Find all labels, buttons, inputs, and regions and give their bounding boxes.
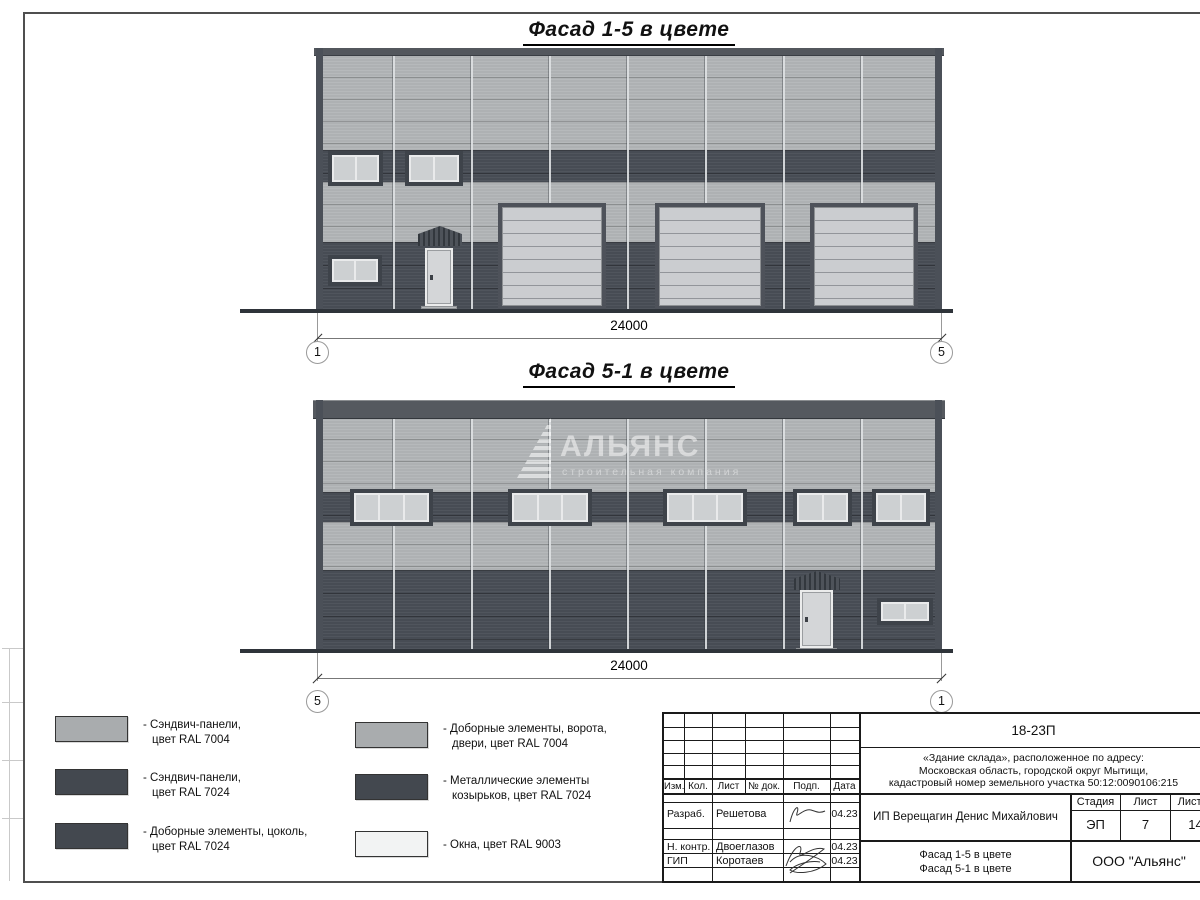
stamp-address: «Здание склада», расположенное по адресу… <box>861 752 1200 790</box>
facade-b-drawing: АЛЬЯНС строительная компания <box>317 400 941 651</box>
dimension-label: 24000 <box>317 318 941 333</box>
stamp-col-podp: Подп. <box>783 780 830 793</box>
stamp-sheets-value: 14 <box>1171 810 1200 840</box>
signature <box>784 802 829 828</box>
frame-top-line <box>23 12 1200 14</box>
legend-label: - Доборные элементы, цоколь, цвет RAL 70… <box>143 825 307 854</box>
stamp-col-list: Лист <box>712 780 745 793</box>
stamp-role: Разраб. <box>667 808 712 820</box>
legend-label: - Металлические элементы козырьков, цвет… <box>443 774 591 803</box>
door-handle <box>805 617 808 622</box>
margin-line <box>9 648 10 881</box>
dimension-line <box>317 338 941 339</box>
door-handle <box>430 275 433 280</box>
stamp-name: Коротаев <box>716 855 782 867</box>
entrance-door <box>800 590 833 648</box>
band-window <box>405 151 463 186</box>
stamp-name: Двоеглазов <box>716 841 782 853</box>
band-window <box>793 489 852 526</box>
stamp-role: Н. контр. <box>667 841 713 853</box>
facade-b-ground-line <box>240 649 953 653</box>
gate-door <box>810 203 918 310</box>
facade-a-title: Фасад 1-5 в цвете <box>317 18 941 46</box>
stamp-date: 04.23 <box>830 855 859 867</box>
axis-marker: 1 <box>930 690 953 713</box>
stamp-stage-value: ЭП <box>1071 810 1120 840</box>
legend-label: - Сэндвич-панели, цвет RAL 7024 <box>143 771 241 800</box>
facade-b-title: Фасад 5-1 в цвете <box>317 360 941 388</box>
band-window <box>872 489 930 526</box>
gate-door <box>498 203 606 310</box>
stamp-sheet-value: 7 <box>1121 810 1170 840</box>
legend-swatch <box>55 769 128 795</box>
stamp-name: Решетова <box>716 808 782 820</box>
band-window <box>350 489 433 526</box>
facade-a-roof-coping <box>314 48 944 56</box>
title-block: Изм. Кол. Лист № док. Подп. Дата Разраб.… <box>662 712 1200 883</box>
stamp-col-kol: Кол. <box>684 780 712 793</box>
stamp-col-data: Дата <box>830 780 859 793</box>
axis-marker: 5 <box>306 690 329 713</box>
facade-b-corner-right <box>935 400 942 651</box>
band-window <box>508 489 592 526</box>
stamp-sheet-title: Фасад 1-5 в цвете Фасад 5-1 в цвете <box>861 848 1070 876</box>
stamp-date: 04.23 <box>830 808 859 820</box>
legend-label: - Сэндвич-панели, цвет RAL 7004 <box>143 718 241 747</box>
stamp-date: 04.23 <box>830 841 859 853</box>
margin-tick <box>2 648 23 649</box>
watermark-subtitle: строительная компания <box>562 466 741 478</box>
legend-swatch <box>355 831 428 857</box>
stamp-client: ИП Верещагин Денис Михайлович <box>861 795 1070 840</box>
stamp-col-izm: Изм. <box>664 780 684 793</box>
dimension-label: 24000 <box>317 658 941 673</box>
plinth-window <box>877 598 933 625</box>
watermark-logo-icon <box>517 418 555 480</box>
legend-swatch <box>355 774 428 800</box>
band-window <box>328 151 383 186</box>
facade-b-parapet <box>313 400 945 419</box>
facade-b-corner-left <box>316 400 323 651</box>
facade-a-drawing <box>317 48 941 310</box>
entrance-door <box>425 248 453 306</box>
stamp-doc-code: 18-23П <box>861 714 1200 747</box>
legend-swatch <box>55 716 128 742</box>
facade-a-ground-line <box>240 309 953 313</box>
facade-a-corner-left <box>316 48 323 310</box>
stamp-sheets-label: Листов <box>1171 795 1200 810</box>
legend-swatch <box>355 722 428 748</box>
signature <box>783 840 830 880</box>
legend-label: - Доборные элементы, ворота, двери, цвет… <box>443 722 607 751</box>
margin-tick <box>2 702 23 703</box>
watermark-name: АЛЬЯНС <box>560 430 700 464</box>
stamp-sheet-label: Лист <box>1121 795 1170 810</box>
legend-swatch <box>55 823 128 849</box>
frame-left-line <box>23 12 25 883</box>
band-window <box>663 489 747 526</box>
dimension-line <box>317 678 941 679</box>
facade-a-corner-right <box>935 48 942 310</box>
drawing-sheet: Фасад 1-5 в цвете 24000 1 <box>0 0 1200 900</box>
margin-tick <box>2 760 23 761</box>
gate-door <box>655 203 765 310</box>
facade-a-title-text: Фасад 1-5 в цвете <box>523 18 736 46</box>
facade-b-title-text: Фасад 5-1 в цвете <box>523 360 736 388</box>
stamp-stage-label: Стадия <box>1071 795 1120 810</box>
stamp-company: ООО "Альянс" <box>1072 842 1200 881</box>
plinth-window <box>328 255 382 286</box>
legend-label: - Окна, цвет RAL 9003 <box>443 838 561 853</box>
stamp-col-doc: № док. <box>745 780 783 793</box>
margin-tick <box>2 818 23 819</box>
stamp-role: ГИП <box>667 855 712 867</box>
